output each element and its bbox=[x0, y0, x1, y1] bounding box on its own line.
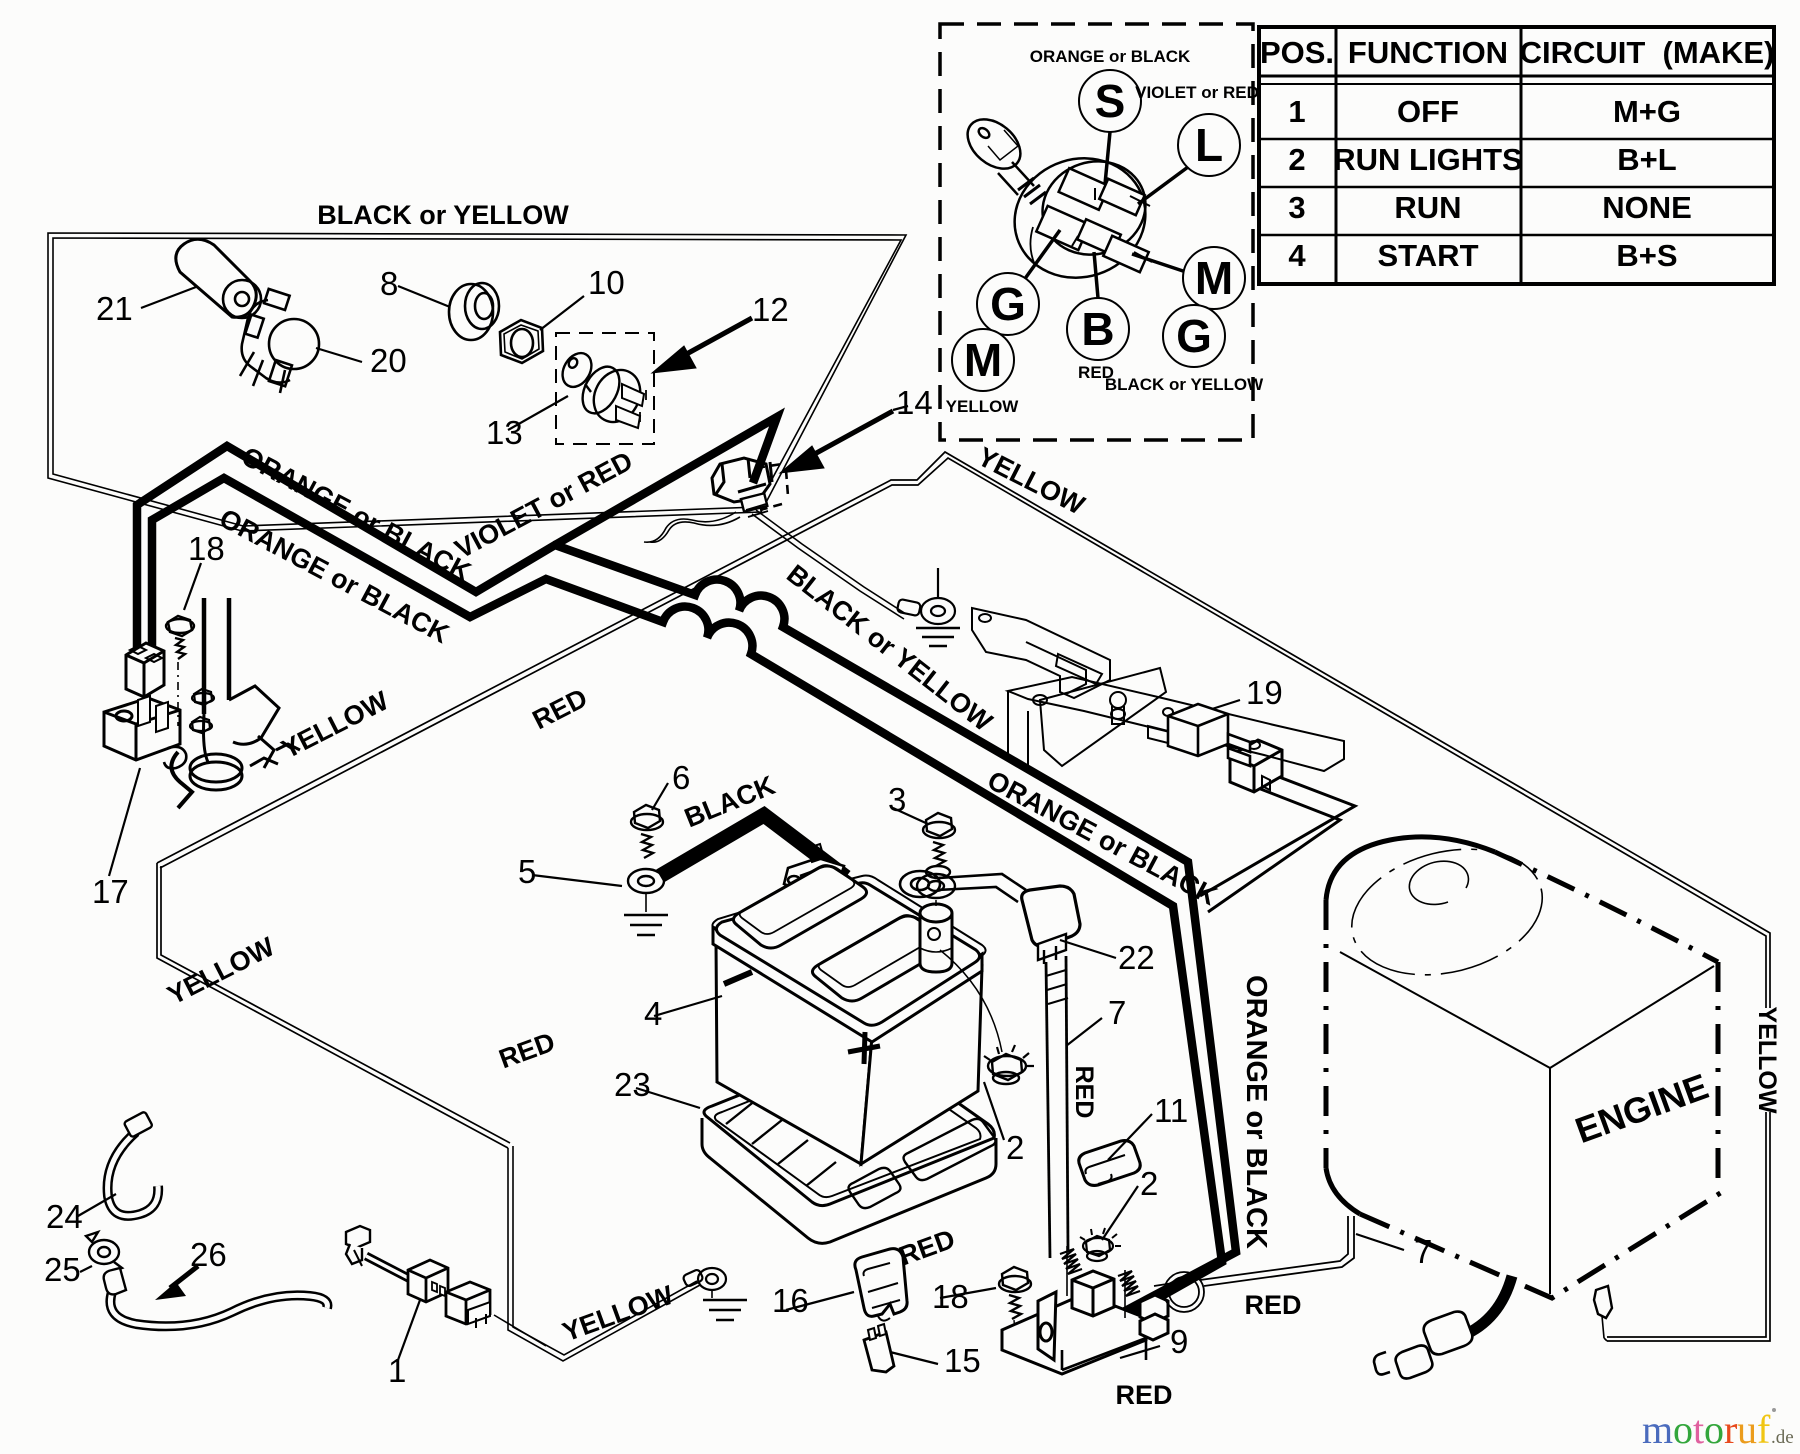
svg-text:.de: .de bbox=[1771, 1427, 1794, 1448]
svg-text:3: 3 bbox=[1288, 190, 1305, 225]
svg-text:20: 20 bbox=[370, 342, 407, 379]
svg-text:r: r bbox=[1724, 1407, 1737, 1452]
svg-text:VIOLET or RED: VIOLET or RED bbox=[1135, 83, 1259, 102]
svg-text:11: 11 bbox=[1154, 1092, 1188, 1129]
svg-text:RUN LIGHTS: RUN LIGHTS bbox=[1333, 142, 1522, 177]
svg-text:L: L bbox=[1195, 119, 1223, 171]
svg-text:12: 12 bbox=[752, 291, 789, 328]
svg-text:RED: RED bbox=[1115, 1380, 1172, 1410]
svg-text:15: 15 bbox=[944, 1342, 981, 1379]
svg-text:14: 14 bbox=[896, 384, 933, 421]
svg-text:24: 24 bbox=[46, 1198, 83, 1235]
svg-text:16: 16 bbox=[772, 1282, 809, 1319]
svg-text:FUNCTION: FUNCTION bbox=[1348, 35, 1508, 70]
svg-text:S: S bbox=[1095, 75, 1126, 127]
svg-text:G: G bbox=[990, 278, 1026, 330]
svg-text:2: 2 bbox=[1288, 142, 1305, 177]
svg-text:6: 6 bbox=[672, 759, 690, 796]
svg-text:17: 17 bbox=[92, 873, 129, 910]
svg-text:o: o bbox=[1673, 1407, 1693, 1452]
svg-text:B+S: B+S bbox=[1616, 238, 1677, 273]
svg-text:8: 8 bbox=[380, 265, 398, 302]
svg-text:t: t bbox=[1693, 1407, 1704, 1452]
svg-text:M: M bbox=[1195, 252, 1233, 304]
svg-text:M+G: M+G bbox=[1613, 94, 1681, 129]
svg-text:M: M bbox=[964, 334, 1002, 386]
svg-text:4: 4 bbox=[1288, 238, 1306, 273]
svg-text:1: 1 bbox=[1288, 94, 1305, 129]
svg-text:BLACK or YELLOW: BLACK or YELLOW bbox=[317, 200, 569, 230]
svg-text:ORANGE or BLACK: ORANGE or BLACK bbox=[1240, 975, 1272, 1249]
svg-text:23: 23 bbox=[614, 1066, 651, 1103]
svg-text:CIRCUIT (MAKE): CIRCUIT (MAKE) bbox=[1520, 35, 1775, 70]
svg-text:o: o bbox=[1704, 1407, 1724, 1452]
svg-text:22: 22 bbox=[1118, 939, 1155, 976]
svg-text:9: 9 bbox=[1170, 1323, 1188, 1360]
svg-text:m: m bbox=[1642, 1407, 1673, 1452]
svg-text:19: 19 bbox=[1246, 674, 1283, 711]
svg-text:10: 10 bbox=[588, 264, 625, 301]
svg-text:u: u bbox=[1737, 1407, 1757, 1452]
svg-text:START: START bbox=[1377, 238, 1478, 273]
svg-text:21: 21 bbox=[96, 290, 133, 327]
svg-text:ORANGE or BLACK: ORANGE or BLACK bbox=[1030, 47, 1191, 66]
svg-text:f: f bbox=[1757, 1407, 1771, 1452]
svg-text:RUN: RUN bbox=[1394, 190, 1461, 225]
svg-text:26: 26 bbox=[190, 1236, 227, 1273]
svg-text:7: 7 bbox=[1414, 1233, 1432, 1270]
svg-text:5: 5 bbox=[518, 853, 536, 890]
svg-text:18: 18 bbox=[188, 530, 225, 567]
svg-text:13: 13 bbox=[486, 414, 523, 451]
svg-text:RED: RED bbox=[1244, 1290, 1301, 1320]
svg-text:BLACK or YELLOW: BLACK or YELLOW bbox=[1105, 375, 1264, 394]
svg-text:7: 7 bbox=[1108, 994, 1126, 1031]
svg-text:YELLOW: YELLOW bbox=[946, 397, 1020, 416]
svg-text:NONE: NONE bbox=[1602, 190, 1692, 225]
svg-text:OFF: OFF bbox=[1397, 94, 1459, 129]
svg-text:B: B bbox=[1081, 303, 1114, 355]
svg-text:1: 1 bbox=[388, 1352, 406, 1389]
svg-text:2: 2 bbox=[1006, 1129, 1024, 1166]
svg-text:G: G bbox=[1176, 310, 1212, 362]
svg-text:B+L: B+L bbox=[1617, 142, 1676, 177]
svg-text:POS.: POS. bbox=[1260, 35, 1334, 70]
svg-text:YELLOW: YELLOW bbox=[1753, 1007, 1781, 1114]
svg-text:RED: RED bbox=[1070, 1066, 1098, 1119]
svg-text:2: 2 bbox=[1140, 1165, 1158, 1202]
svg-text:25: 25 bbox=[44, 1251, 81, 1288]
